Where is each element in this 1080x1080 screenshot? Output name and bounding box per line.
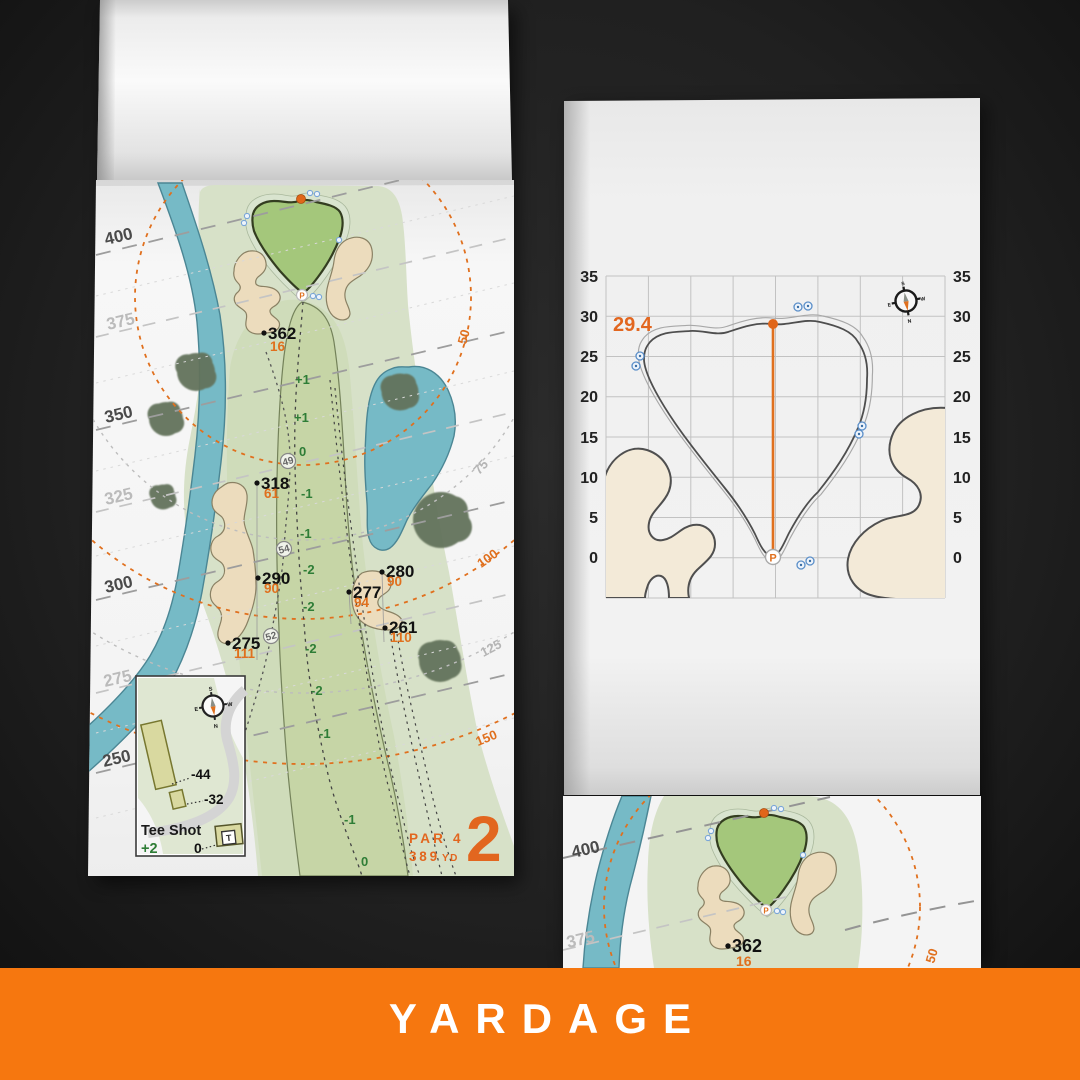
svg-text:-2: -2 (305, 641, 317, 656)
svg-text:0: 0 (299, 444, 306, 459)
svg-text:-1: -1 (300, 526, 312, 541)
svg-text:Tee Shot: Tee Shot (141, 823, 201, 839)
svg-text:10: 10 (580, 470, 598, 487)
svg-text:0: 0 (194, 840, 202, 856)
svg-text:-1: -1 (319, 726, 331, 741)
svg-text:P: P (769, 553, 776, 565)
svg-text:-2: -2 (303, 599, 315, 614)
svg-text:35: 35 (953, 269, 971, 286)
svg-text:15: 15 (953, 430, 971, 447)
svg-text:-2: -2 (311, 683, 323, 698)
svg-text:+1: +1 (294, 410, 309, 425)
svg-text:15: 15 (580, 430, 598, 447)
svg-text:+1: +1 (295, 372, 310, 387)
svg-text:61: 61 (264, 486, 280, 501)
svg-text:25: 25 (580, 349, 598, 366)
svg-text:PAR 4: PAR 4 (409, 831, 464, 846)
svg-text:29.4: 29.4 (613, 314, 653, 336)
svg-text:0: 0 (953, 550, 962, 567)
svg-text:P: P (763, 907, 769, 916)
svg-text:5: 5 (589, 510, 598, 527)
svg-text:20: 20 (953, 389, 971, 406)
svg-text:-1: -1 (301, 486, 313, 501)
svg-text:-2: -2 (303, 562, 315, 577)
svg-text:P: P (299, 292, 305, 301)
svg-text:N: N (214, 724, 219, 730)
svg-text:30: 30 (580, 309, 598, 326)
svg-text:-44: -44 (191, 767, 211, 782)
svg-text:+2: +2 (141, 841, 158, 857)
svg-text:-32: -32 (204, 792, 224, 807)
svg-text:YARDAGE: YARDAGE (389, 995, 707, 1042)
svg-text:5: 5 (953, 510, 962, 527)
svg-text:94: 94 (354, 595, 370, 610)
svg-text:10: 10 (953, 470, 971, 487)
svg-text:110: 110 (390, 630, 412, 645)
svg-text:25: 25 (953, 349, 971, 366)
svg-text:0: 0 (589, 550, 598, 567)
svg-text:90: 90 (264, 581, 279, 596)
svg-text:90: 90 (387, 574, 402, 589)
svg-text:2: 2 (466, 803, 502, 875)
svg-text:-1: -1 (344, 812, 356, 827)
svg-text:35: 35 (580, 269, 598, 286)
svg-text:16: 16 (736, 953, 752, 969)
svg-text:30: 30 (953, 309, 971, 326)
svg-text:111: 111 (234, 646, 256, 661)
svg-text:20: 20 (580, 389, 598, 406)
svg-text:16: 16 (270, 339, 286, 354)
svg-text:0: 0 (361, 854, 368, 869)
